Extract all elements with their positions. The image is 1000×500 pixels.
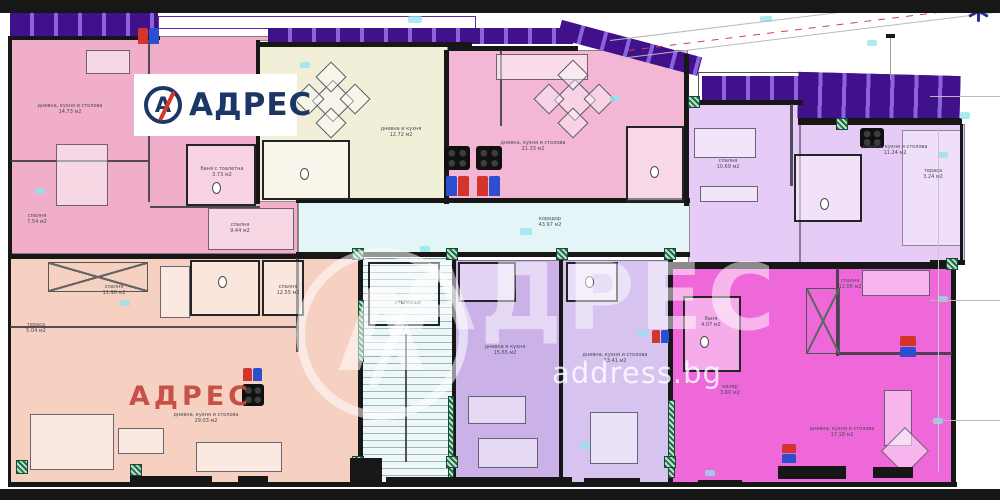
cyan-tick <box>610 96 620 102</box>
wall-segment <box>798 118 962 125</box>
insulation-pad <box>946 258 958 270</box>
room-label: спалня10.69 м2 <box>698 158 758 170</box>
wall-segment <box>688 100 803 105</box>
toilet <box>820 198 829 210</box>
room-label: дневна, кухня и столова14.73 м2 <box>30 103 110 115</box>
cyan-tick <box>938 296 948 302</box>
wall-segment <box>448 46 578 51</box>
cyan-tick <box>580 443 590 449</box>
dimension-line <box>930 300 1000 301</box>
brand-logo-text: АДРЕС <box>189 87 312 123</box>
letterbox-bottom <box>0 489 1000 500</box>
insulation-pad <box>130 464 142 476</box>
dimension-line <box>930 420 1000 421</box>
cyan-tick <box>938 152 948 158</box>
letterbox-top <box>0 0 1000 13</box>
cyan-tick <box>35 188 45 194</box>
brand-logo-circle-icon: А <box>144 86 182 124</box>
riser-marker-red <box>900 336 916 346</box>
room-label: дневна, кухня и столова21.33 м2 <box>492 140 574 152</box>
balcony-band-right-inner <box>702 76 804 100</box>
cyan-tick <box>300 62 310 68</box>
dresser <box>700 186 758 202</box>
brand-logo: А АДРЕС <box>134 74 297 136</box>
wardrobe <box>806 288 840 354</box>
wall-segment <box>8 256 11 486</box>
riser-marker-red <box>243 368 252 381</box>
sofa <box>468 396 526 424</box>
riser-marker-blue <box>149 28 159 44</box>
survey-line <box>620 10 1000 59</box>
bathroom <box>794 154 862 222</box>
insulation-pad <box>836 118 848 130</box>
toilet <box>212 182 221 194</box>
riser-marker-blue <box>782 454 796 463</box>
bed <box>160 266 190 318</box>
balcony-band-top-left <box>10 13 158 38</box>
room-label: спалня12.06 м2 <box>818 278 882 290</box>
wardrobe <box>86 50 130 74</box>
bed <box>590 412 638 464</box>
survey-pole-cap <box>886 34 895 38</box>
cyan-tick <box>867 40 877 46</box>
riser-marker-red <box>477 176 488 196</box>
door-sill <box>386 477 572 485</box>
balcony-band-right <box>797 72 960 122</box>
room-label: коридор43.97 м2 <box>518 216 582 228</box>
dining-table <box>538 64 612 136</box>
wall-segment <box>256 42 472 47</box>
bed <box>196 442 282 472</box>
bed <box>56 144 108 206</box>
cooktop <box>444 146 470 170</box>
cyan-tick <box>408 16 422 23</box>
cyan-tick <box>705 470 715 476</box>
cyan-tick <box>960 112 970 119</box>
wall-segment <box>790 104 793 186</box>
riser-marker-blue <box>900 347 916 357</box>
insulation-pad <box>446 456 458 468</box>
wall-segment <box>836 352 952 355</box>
insulation-pad <box>688 96 700 108</box>
wall-segment <box>951 262 956 486</box>
door-sill <box>698 480 742 486</box>
insulation-pad <box>664 456 676 468</box>
door-sill <box>778 466 846 479</box>
riser-marker-red <box>458 176 469 196</box>
bathroom <box>190 260 260 316</box>
room-label: тераса5.04 м2 <box>14 322 58 334</box>
wall-segment <box>960 124 963 264</box>
wall-segment <box>8 254 362 259</box>
room-label: спалня9.44 м2 <box>205 222 275 234</box>
wall-segment <box>684 54 689 206</box>
toilet <box>650 166 659 178</box>
watermark-brand-text: АДРЕС <box>404 252 780 344</box>
room-label: дневна, кухня и столова11.24 м2 <box>860 144 930 156</box>
toilet <box>218 276 227 288</box>
door-sill <box>873 467 913 478</box>
insulation-strip <box>448 396 454 482</box>
room-label: спалня11.96 м2 <box>82 284 146 296</box>
door-sill <box>584 478 640 485</box>
cyan-tick <box>520 228 532 235</box>
bathroom <box>626 126 684 202</box>
riser-marker-red <box>138 28 148 44</box>
coffee-table <box>118 428 164 454</box>
bed <box>694 128 756 158</box>
toilet <box>300 168 309 180</box>
room-label: дневна и кухня12.72 м2 <box>368 126 434 138</box>
dimension-line <box>930 96 1000 97</box>
room-label: дневна, кухня и столова17.18 м2 <box>796 426 888 438</box>
room-label: дневна, кухня и столова29.03 м2 <box>160 412 252 424</box>
survey-pole <box>890 36 891 80</box>
door-sill <box>130 476 212 485</box>
bed <box>478 438 538 468</box>
door-sill <box>350 458 382 484</box>
riser-marker-blue <box>446 176 457 196</box>
room-label: тераса3.24 м2 <box>908 168 958 180</box>
riser-marker-blue <box>253 368 262 381</box>
riser-marker-red <box>782 444 796 453</box>
riser-marker-blue <box>489 176 500 196</box>
cyan-tick <box>120 300 130 306</box>
door-sill <box>238 476 268 484</box>
watermark-site-text: address.bg <box>552 356 722 390</box>
corner-sofa <box>30 414 114 470</box>
watermark-red-text: АДРЕС <box>129 381 252 412</box>
floorplan-image: дневна, кухня и столова14.73 м2 баня с т… <box>0 0 1000 500</box>
room-label: баня с тоалетна3.73 м2 <box>193 166 251 178</box>
insulation-pad <box>16 460 28 474</box>
room-label: спалня7.54 м2 <box>12 213 62 225</box>
